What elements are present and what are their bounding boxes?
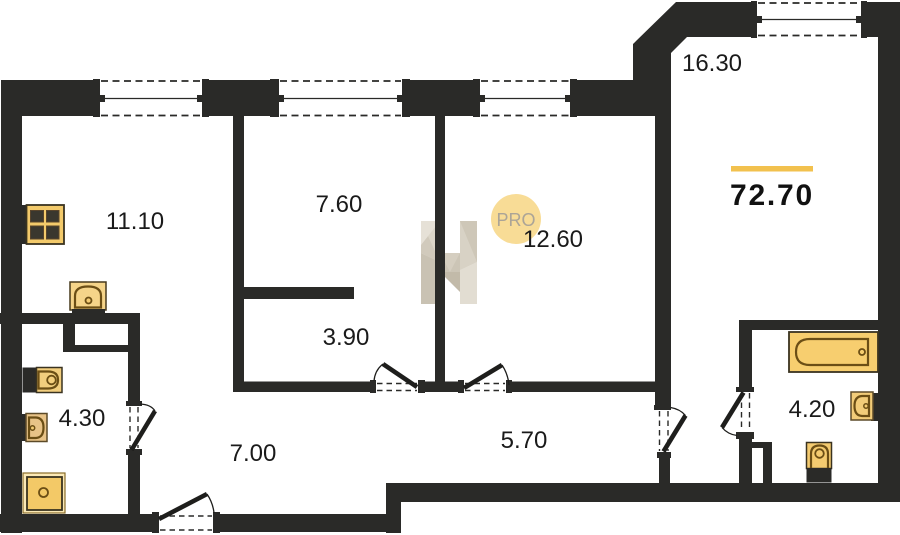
svg-text:3.90: 3.90: [323, 324, 370, 351]
svg-text:7.00: 7.00: [230, 440, 277, 467]
svg-text:12.60: 12.60: [523, 226, 583, 253]
svg-text:11.10: 11.10: [106, 208, 164, 235]
svg-text:16.30: 16.30: [682, 50, 742, 77]
svg-text:4.30: 4.30: [59, 405, 106, 432]
svg-text:72.70: 72.70: [730, 179, 814, 212]
svg-text:5.70: 5.70: [501, 427, 548, 454]
svg-text:4.20: 4.20: [789, 396, 836, 423]
svg-text:7.60: 7.60: [316, 191, 363, 218]
